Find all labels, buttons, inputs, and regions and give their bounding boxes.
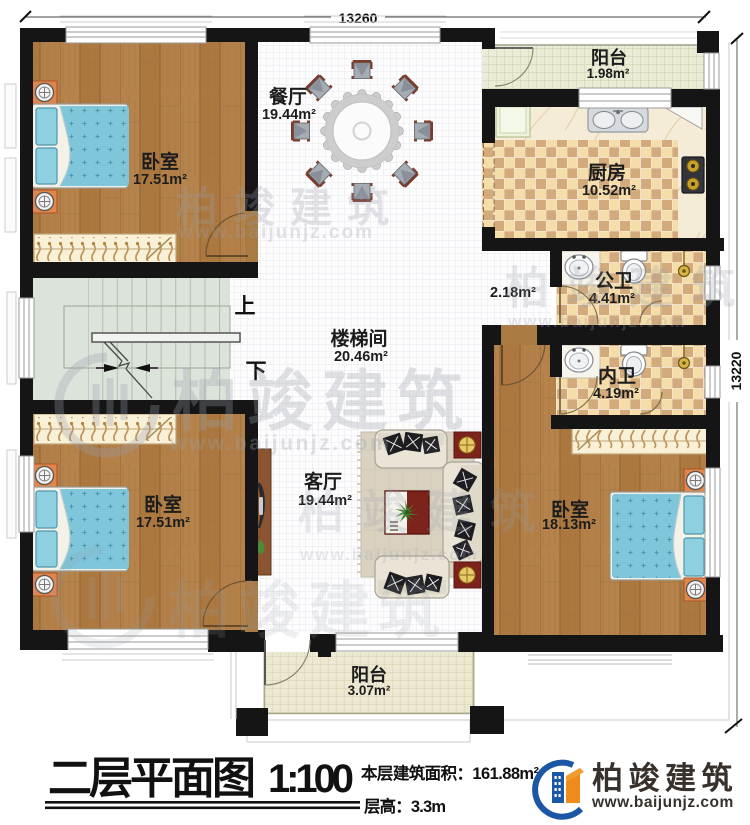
svg-text:上: 上: [235, 295, 256, 318]
svg-text:柏竣建筑: 柏竣建筑: [298, 486, 554, 538]
svg-text:20.46m²: 20.46m²: [334, 349, 388, 365]
svg-text:本层建筑面积：161.88m²: 本层建筑面积：161.88m²: [361, 763, 540, 783]
svg-text:楼梯间: 楼梯间: [330, 327, 387, 350]
svg-text:餐厅: 餐厅: [269, 85, 307, 108]
svg-text:层高：3.3m: 层高：3.3m: [364, 796, 446, 816]
svg-text:柏竣建筑: 柏竣建筑: [168, 577, 448, 646]
svg-text:柏竣建筑: 柏竣建筑: [172, 364, 472, 438]
svg-text:www.baijunjz.com: www.baijunjz.com: [299, 545, 479, 564]
svg-text:19.44m²: 19.44m²: [262, 107, 316, 123]
svg-text:柏竣建筑: 柏竣建筑: [505, 264, 750, 313]
svg-text:4.19m²: 4.19m²: [593, 386, 639, 402]
svg-text:阳台: 阳台: [591, 47, 627, 68]
svg-text:17.51m²: 17.51m²: [136, 515, 190, 531]
svg-text:www.baijunjz.com: www.baijunjz.com: [177, 222, 374, 243]
svg-text:www.baijunjz.com: www.baijunjz.com: [169, 432, 391, 455]
svg-text:www.baijunjz.com: www.baijunjz.com: [591, 794, 734, 811]
svg-text:13220: 13220: [728, 351, 744, 390]
svg-text:3.07m²: 3.07m²: [348, 683, 391, 698]
svg-text:13260: 13260: [339, 10, 378, 26]
svg-text:厨房: 厨房: [588, 161, 626, 184]
svg-text:柏竣建筑: 柏竣建筑: [592, 761, 738, 796]
svg-text:1:100: 1:100: [268, 757, 354, 801]
svg-text:1.98m²: 1.98m²: [587, 66, 630, 81]
svg-text:二层平面图: 二层平面图: [48, 754, 256, 803]
svg-text:阳台: 阳台: [351, 664, 387, 685]
svg-text:内卫: 内卫: [598, 364, 636, 387]
svg-text:10.52m²: 10.52m²: [582, 183, 636, 199]
svg-text:卧室: 卧室: [141, 150, 179, 173]
svg-text:www.baijunjz.com: www.baijunjz.com: [507, 312, 687, 331]
svg-text:卧室: 卧室: [144, 493, 182, 516]
